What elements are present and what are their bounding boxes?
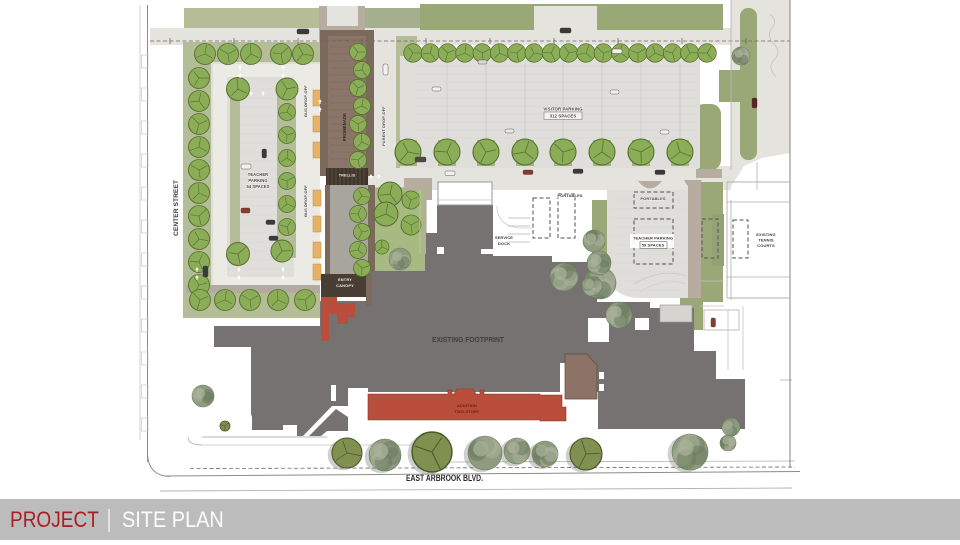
svg-text:TENNIS: TENNIS [758, 238, 773, 243]
svg-text:PORTABLES: PORTABLES [557, 193, 583, 198]
svg-text:TEACHER PARKING: TEACHER PARKING [633, 236, 673, 241]
svg-text:312 SPACES: 312 SPACES [550, 114, 577, 119]
svg-text:TRELLIS: TRELLIS [339, 174, 356, 178]
svg-text:PORTABLES: PORTABLES [640, 196, 666, 201]
svg-text:PARKING: PARKING [248, 178, 267, 183]
svg-text:ADDITION: ADDITION [457, 403, 477, 408]
svg-text:59 SPACES: 59 SPACES [642, 243, 665, 248]
svg-text:COURTS: COURTS [757, 243, 775, 248]
svg-text:EXISTING FOOTPRINT: EXISTING FOOTPRINT [432, 335, 504, 344]
svg-text:EAST ARBROOK BLVD.: EAST ARBROOK BLVD. [406, 473, 483, 483]
svg-text:CENTER STREET: CENTER STREET [173, 180, 180, 236]
svg-text:BUS DROP-OFF: BUS DROP-OFF [303, 85, 308, 117]
svg-text:DOCK: DOCK [498, 241, 510, 246]
svg-text:VISITOR PARKING: VISITOR PARKING [543, 107, 583, 112]
svg-text:54 SPACES: 54 SPACES [246, 184, 269, 189]
svg-text:TWO-STORY: TWO-STORY [454, 409, 479, 414]
svg-text:SERVICE: SERVICE [495, 235, 513, 240]
svg-text:PROMENADE: PROMENADE [342, 113, 347, 141]
svg-text:ENTRY: ENTRY [338, 277, 352, 282]
svg-text:CANOPY: CANOPY [336, 283, 354, 288]
svg-text:PARENT DROP-OFF: PARENT DROP-OFF [381, 106, 386, 146]
svg-text:TEACHER: TEACHER [248, 172, 269, 177]
svg-text:BUS DROP-OFF: BUS DROP-OFF [303, 185, 308, 217]
svg-text:EXISTING: EXISTING [756, 232, 775, 237]
